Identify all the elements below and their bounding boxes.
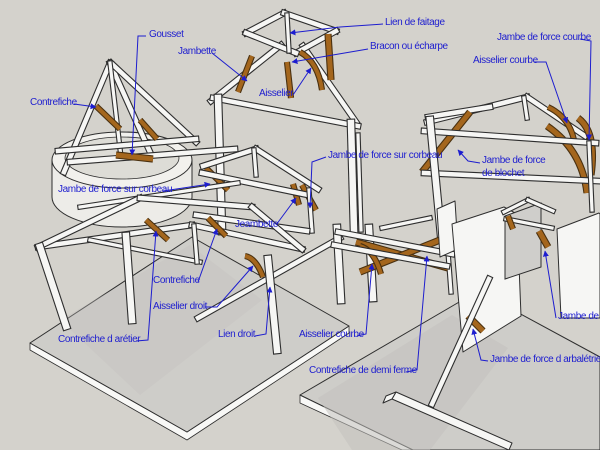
label-jambe-de-force-courbe: Jambe de force courbe — [497, 32, 591, 43]
label-jeambette: Jeambette — [235, 219, 278, 230]
label-lien-de-faitage: Lien de faitage — [385, 17, 445, 28]
leader-aisselier — [293, 68, 311, 95]
label-jdf-sur-corbeau-gauche: Jambe de force sur corbeau — [58, 184, 172, 195]
label-contrefiche-haut: Contrefiche — [30, 97, 77, 108]
label-contrefiche-demi-ferme: Contrefiche de demi ferme — [309, 365, 417, 376]
label-jdf-sur-corbeau-centre: Jambe de force sur corbeau — [328, 150, 442, 161]
label-lien-droit: Lien droit — [218, 329, 255, 340]
leader-jdf-tronque — [545, 251, 556, 318]
viewport-3d[interactable] — [0, 0, 600, 450]
label-jdf-de-blochet-ligne2: de blochet — [482, 168, 524, 179]
structure-ferme-centrale — [196, 13, 361, 231]
label-jdf-tronque: Jambe de fo — [558, 311, 600, 322]
structure-demi-ferme — [334, 228, 452, 300]
label-gousset: Gousset — [149, 29, 183, 40]
label-jdf-de-blochet-ligne1: Jambe de force — [482, 155, 545, 166]
label-aisselier-courbe-haut: Aisselier courbe — [473, 55, 538, 66]
label-bracon-ou-echarpe: Bracon ou écharpe — [370, 41, 448, 52]
label-aisselier: Aisselier — [259, 88, 293, 99]
label-jdf-d-arbaletrier: Jambe de force d arbalétrier — [490, 354, 600, 365]
leader-jdf-blochet — [458, 150, 480, 163]
leader-jambette — [212, 53, 247, 81]
label-contrefiche-milieu: Contrefiche — [153, 275, 200, 286]
label-aisselier-droit: Aisselier droit — [153, 301, 207, 312]
sketchup-canvas: Gousset Jambette Contrefiche Aisselier L… — [0, 0, 600, 450]
label-contrefiche-d-aretier: Contrefiche d arétier — [58, 334, 140, 345]
label-aisselier-courbe-bas: Aisselier courbe — [299, 329, 364, 340]
leader-jeambette — [276, 198, 296, 225]
label-jambette: Jambette — [178, 46, 216, 57]
